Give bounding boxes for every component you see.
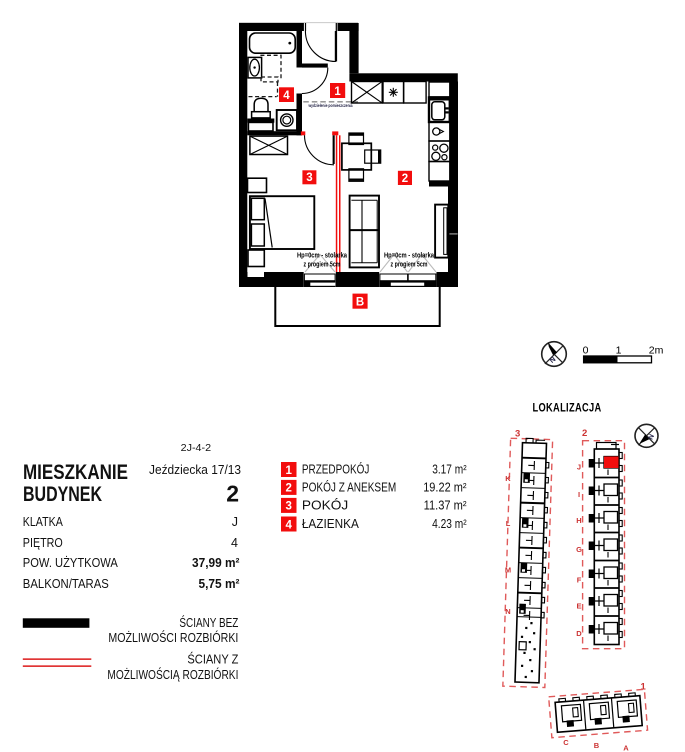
svg-text:ŁAZIENKA: ŁAZIENKA: [302, 516, 359, 531]
svg-text:5,75 m²: 5,75 m²: [199, 577, 240, 591]
svg-text:2: 2: [285, 483, 291, 495]
svg-text:0: 0: [583, 345, 589, 357]
svg-text:37,99 m²: 37,99 m²: [192, 556, 240, 570]
svg-text:2: 2: [402, 173, 408, 185]
svg-text:1: 1: [334, 86, 341, 98]
svg-text:4.23 m²: 4.23 m²: [432, 516, 467, 531]
svg-text:MOŻLIWOŚCIĄ ROZBIÓRKI: MOŻLIWOŚCIĄ ROZBIÓRKI: [107, 667, 238, 682]
svg-text:J: J: [232, 515, 238, 529]
svg-text:ŚCIANY BEZ: ŚCIANY BEZ: [179, 615, 238, 630]
svg-text:BUDYNEK: BUDYNEK: [23, 483, 102, 506]
svg-text:2J-4-2: 2J-4-2: [181, 442, 212, 454]
svg-text:POW. UŻYTKOWA: POW. UŻYTKOWA: [23, 556, 119, 570]
svg-text:1: 1: [285, 465, 292, 477]
svg-text:z progiem 5cm: z progiem 5cm: [304, 262, 341, 269]
svg-text:PRZEDPOKÓJ: PRZEDPOKÓJ: [302, 462, 369, 477]
svg-text:B: B: [356, 297, 364, 309]
svg-text:1: 1: [641, 682, 647, 693]
svg-text:3: 3: [285, 501, 291, 513]
svg-text:4: 4: [283, 90, 290, 102]
svg-text:M: M: [505, 566, 511, 575]
svg-text:PIĘTRO: PIĘTRO: [23, 536, 63, 550]
svg-text:N: N: [505, 607, 510, 616]
svg-text:3.17 m²: 3.17 m²: [432, 462, 467, 477]
svg-text:Hp=0cm - stolarka: Hp=0cm - stolarka: [384, 253, 434, 260]
svg-text:POKÓJ Z ANEKSEM: POKÓJ Z ANEKSEM: [302, 479, 396, 494]
svg-text:wydzielenie pomieszczenia: wydzielenie pomieszczenia: [308, 103, 353, 108]
svg-text:BALKON/TARAS: BALKON/TARAS: [23, 577, 109, 591]
svg-text:2m: 2m: [649, 345, 664, 357]
svg-text:I: I: [578, 490, 580, 499]
svg-text:D: D: [576, 629, 582, 638]
svg-text:A: A: [623, 744, 629, 752]
svg-text:K: K: [505, 474, 511, 483]
svg-text:4: 4: [231, 536, 238, 550]
svg-text:G: G: [576, 545, 582, 554]
svg-text:ŚCIANY Z: ŚCIANY Z: [187, 652, 238, 667]
svg-text:L: L: [506, 519, 511, 528]
svg-text:z progiem 5cm: z progiem 5cm: [391, 262, 428, 269]
svg-text:B: B: [594, 741, 600, 750]
svg-text:J: J: [577, 463, 581, 472]
svg-text:E: E: [576, 602, 581, 611]
svg-text:KLATKA: KLATKA: [23, 515, 64, 529]
svg-text:MIESZKANIE: MIESZKANIE: [23, 461, 128, 484]
svg-text:2: 2: [226, 480, 239, 506]
svg-text:LOKALIZACJA: LOKALIZACJA: [533, 403, 602, 415]
svg-text:POKÓJ: POKÓJ: [302, 497, 348, 512]
svg-text:4: 4: [285, 519, 292, 531]
svg-text:19.22 m²: 19.22 m²: [423, 479, 467, 494]
svg-text:Hp=0cm - stolarka: Hp=0cm - stolarka: [297, 253, 347, 260]
svg-text:F: F: [577, 576, 582, 585]
svg-text:3: 3: [306, 172, 312, 184]
svg-text:H: H: [576, 516, 581, 525]
svg-text:1: 1: [616, 345, 622, 357]
svg-text:C: C: [563, 738, 569, 747]
svg-text:2: 2: [582, 428, 587, 439]
svg-text:Jeździecka 17/13: Jeździecka 17/13: [149, 462, 241, 477]
svg-text:MOŻLIWOŚCI ROZBIÓRKI: MOŻLIWOŚCI ROZBIÓRKI: [108, 630, 238, 645]
svg-text:11.37 m²: 11.37 m²: [424, 497, 468, 512]
